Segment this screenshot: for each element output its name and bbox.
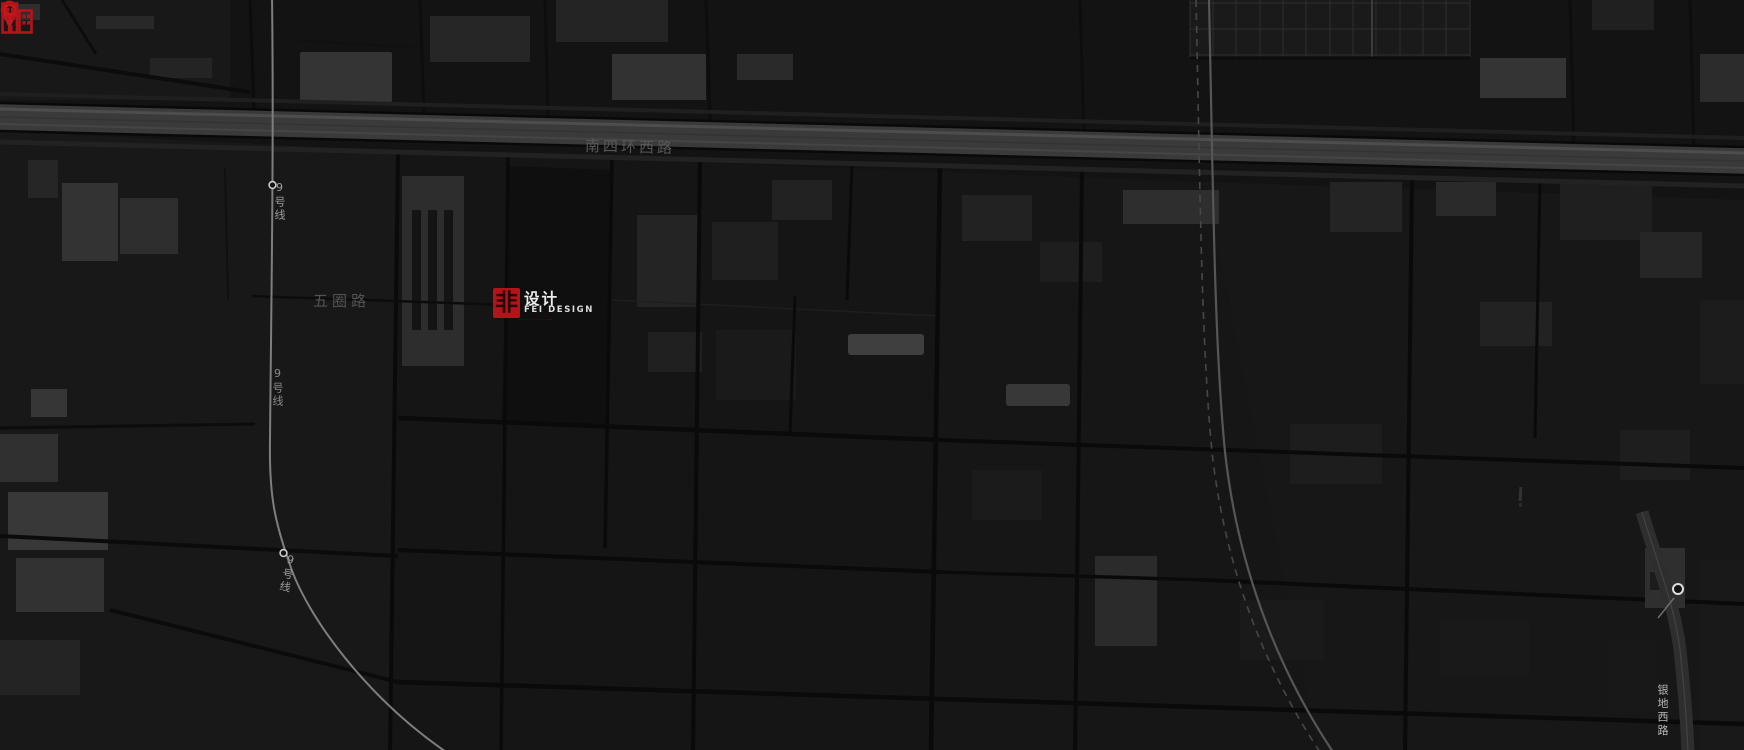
logo-subtitle: FEI DESIGN xyxy=(524,305,594,315)
metro-station-icon xyxy=(280,550,287,557)
logo-square: 非 xyxy=(493,288,520,318)
grid-complex-block xyxy=(1190,0,1470,58)
logo-tagline: —··········— xyxy=(490,318,582,323)
metro-station-icon xyxy=(269,182,276,189)
map-canvas xyxy=(0,0,1744,750)
logo-square-char: 非 xyxy=(495,292,518,315)
metro-station-icon xyxy=(1673,584,1683,594)
map-viewport[interactable]: 南四环西路 五圈路 9号线 9号线 9号线 银地西路 xyxy=(0,0,1744,750)
company-building-icon xyxy=(0,0,34,40)
